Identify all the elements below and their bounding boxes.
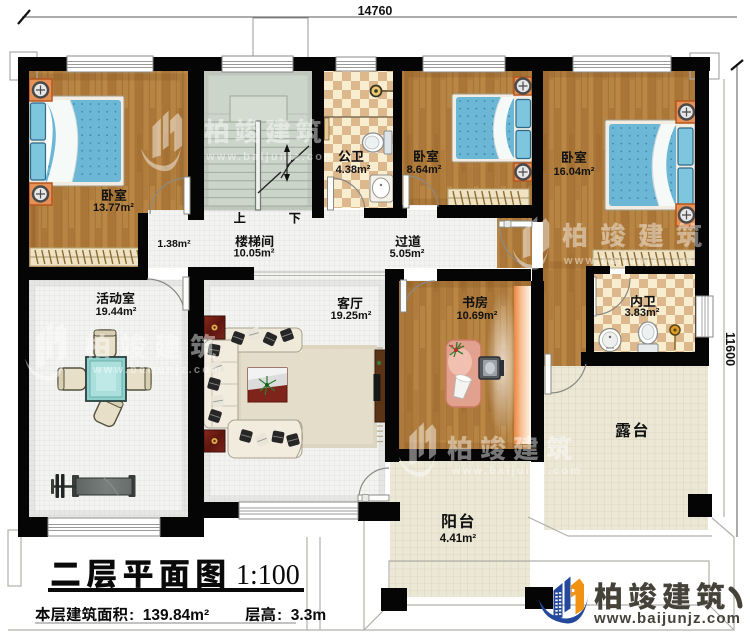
svg-text:1.38m²: 1.38m² xyxy=(157,238,191,250)
svg-text:19.44m²: 19.44m² xyxy=(96,306,137,318)
svg-text:13.77m²: 13.77m² xyxy=(93,202,134,214)
svg-text:10.05m²: 10.05m² xyxy=(234,248,275,260)
svg-text:www.baijunjz.com: www.baijunjz.com xyxy=(92,364,223,376)
svg-text:16.04m²: 16.04m² xyxy=(554,166,595,178)
svg-text:4.41m²: 4.41m² xyxy=(440,533,477,545)
svg-text:8.64m²: 8.64m² xyxy=(407,164,442,176)
svg-text:11600: 11600 xyxy=(723,332,737,366)
svg-text:10.69m²: 10.69m² xyxy=(457,310,498,322)
svg-text:4.38m²: 4.38m² xyxy=(336,164,371,176)
svg-text:14760: 14760 xyxy=(358,4,393,18)
svg-text:5.05m²: 5.05m² xyxy=(390,248,425,260)
svg-text:www.baijunjz.com: www.baijunjz.com xyxy=(593,610,741,627)
svg-text:19.25m²: 19.25m² xyxy=(331,310,372,322)
svg-text:3.83m²: 3.83m² xyxy=(625,307,660,319)
svg-text:www.baijunjz.com: www.baijunjz.com xyxy=(451,465,582,477)
svg-text:www.baijunjz.com: www.baijunjz.com xyxy=(205,151,336,163)
svg-text:1:100: 1:100 xyxy=(236,560,300,591)
svg-text:: 139.84m²: : 139.84m² xyxy=(129,607,209,624)
svg-text:: 3.3m: : 3.3m xyxy=(277,607,326,624)
svg-text:www.baijunjz.com: www.baijunjz.com xyxy=(563,255,694,267)
